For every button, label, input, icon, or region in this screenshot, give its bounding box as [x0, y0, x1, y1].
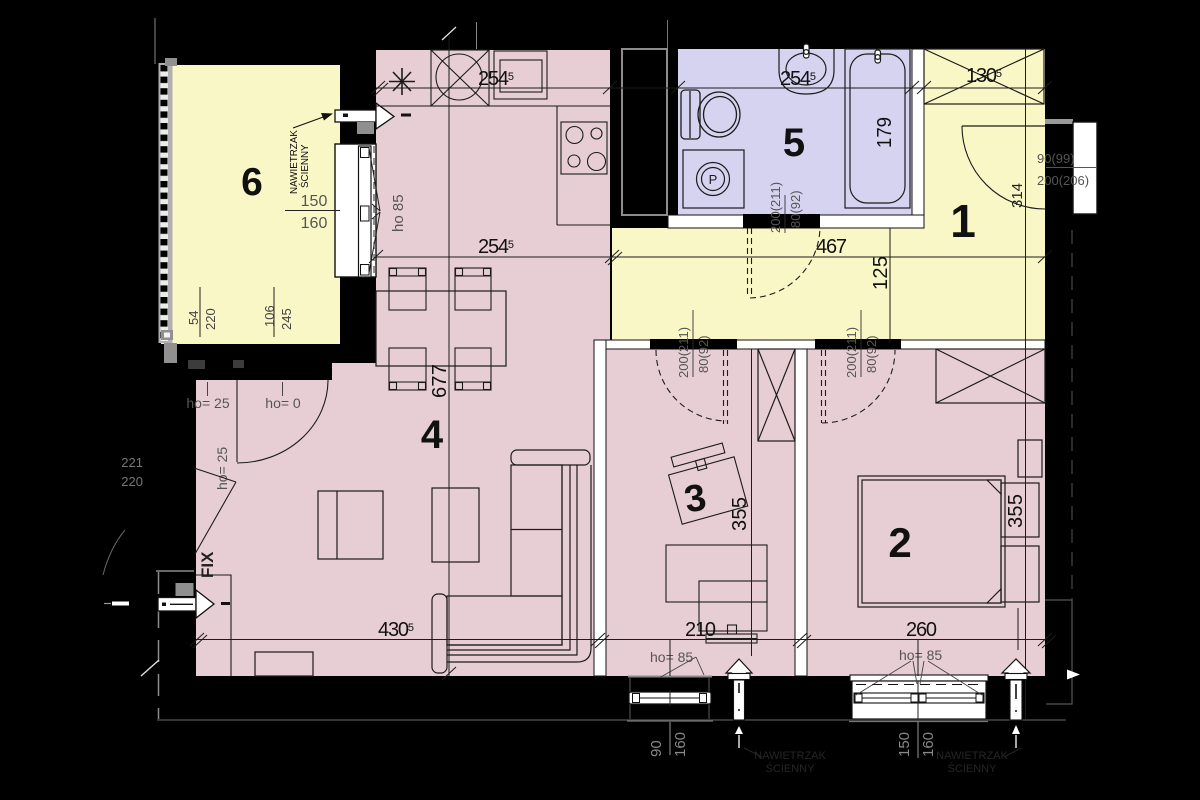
svg-text:200(206): 200(206)	[1037, 173, 1089, 188]
svg-text:80(92): 80(92)	[864, 335, 879, 373]
svg-text:2545: 2545	[478, 68, 514, 90]
svg-text:1305: 1305	[966, 65, 1002, 87]
svg-text:5: 5	[783, 121, 805, 165]
svg-text:210: 210	[685, 619, 716, 641]
svg-text:179: 179	[874, 117, 896, 148]
svg-text:NAWIETRZAK: NAWIETRZAK	[754, 750, 826, 762]
svg-text:260: 260	[906, 619, 937, 641]
svg-text:150: 150	[301, 193, 328, 210]
svg-text:677: 677	[429, 364, 451, 398]
svg-text:80(92): 80(92)	[696, 335, 711, 373]
svg-text:221: 221	[121, 455, 143, 470]
svg-text:200(211): 200(211)	[768, 182, 783, 233]
svg-text:125: 125	[870, 256, 892, 290]
svg-text:6: 6	[241, 161, 263, 204]
svg-text:160: 160	[920, 732, 937, 757]
svg-text:2545: 2545	[478, 236, 514, 258]
svg-text:NAWIETRZAK: NAWIETRZAK	[936, 750, 1008, 762]
svg-text:54: 54	[186, 311, 201, 325]
svg-text:467: 467	[816, 236, 847, 258]
svg-text:ho 85: ho 85	[390, 194, 407, 232]
svg-text:106: 106	[262, 305, 277, 327]
svg-text:ho= 0: ho= 0	[265, 395, 301, 411]
svg-text:ŚCIENNY: ŚCIENNY	[948, 762, 998, 775]
svg-text:355: 355	[729, 497, 751, 531]
svg-text:90(99): 90(99)	[1037, 151, 1075, 166]
svg-text:4: 4	[421, 413, 444, 457]
svg-text:2545: 2545	[780, 68, 816, 90]
svg-text:245: 245	[279, 308, 294, 330]
svg-text:160: 160	[672, 732, 689, 757]
svg-text:80(92): 80(92)	[788, 190, 803, 228]
svg-text:200(211): 200(211)	[844, 327, 859, 378]
svg-text:2: 2	[888, 519, 911, 566]
svg-text:ŚCIENNY: ŚCIENNY	[766, 762, 816, 775]
svg-text:NAWIETRZAK: NAWIETRZAK	[289, 130, 300, 194]
svg-text:90: 90	[648, 740, 665, 757]
svg-text:ho= 25: ho= 25	[214, 447, 230, 490]
svg-text:160: 160	[301, 215, 328, 232]
svg-text:ho= 25: ho= 25	[186, 395, 229, 411]
svg-text:355: 355	[1005, 494, 1027, 528]
svg-text:150: 150	[896, 732, 913, 757]
svg-text:ho= 85: ho= 85	[899, 647, 942, 663]
svg-text:FIX: FIX	[198, 551, 217, 578]
svg-text:220: 220	[121, 474, 143, 489]
svg-text:1: 1	[950, 195, 976, 247]
svg-text:P: P	[709, 172, 718, 187]
svg-text:ŚCIENNY: ŚCIENNY	[299, 144, 311, 188]
svg-text:220: 220	[203, 308, 218, 330]
svg-text:200(211): 200(211)	[676, 327, 691, 378]
svg-text:314: 314	[1009, 183, 1026, 208]
svg-text:4305: 4305	[378, 619, 414, 641]
